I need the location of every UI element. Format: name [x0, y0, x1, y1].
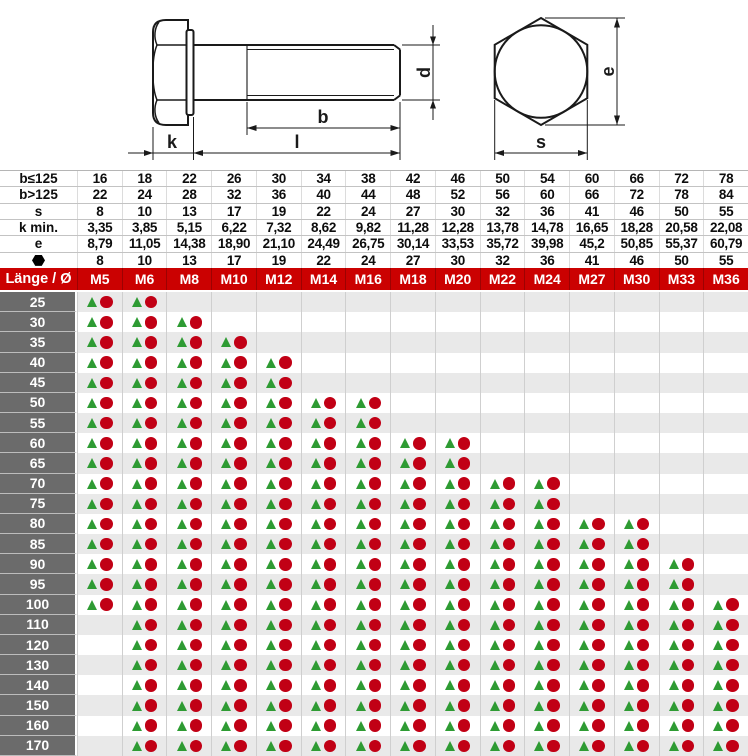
triangle-marker	[266, 600, 276, 610]
triangle-marker	[87, 519, 97, 529]
availability-cell-M6-30	[122, 312, 167, 332]
triangle-marker	[132, 660, 142, 670]
triangle-marker	[445, 579, 455, 589]
circle-marker	[145, 498, 158, 511]
triangle-marker	[266, 640, 276, 650]
triangle-marker	[534, 539, 544, 549]
triangle-marker	[534, 701, 544, 711]
triangle-marker	[445, 620, 455, 630]
availability-cell-M16-95	[345, 574, 390, 594]
spec-value: 46	[614, 253, 659, 268]
availability-cell-M14-140	[301, 675, 346, 695]
circle-marker	[279, 356, 292, 369]
triangle-marker	[400, 721, 410, 731]
triangle-marker	[579, 539, 589, 549]
spec-value: 22,08	[703, 220, 748, 235]
availability-cell-M16-45	[345, 373, 390, 393]
availability-cell-M18-95	[390, 574, 435, 594]
dim-k-label: k	[167, 132, 178, 152]
circle-marker	[592, 679, 605, 692]
circle-marker	[637, 578, 650, 591]
circle-marker	[100, 356, 113, 369]
spec-value: 3,35	[77, 220, 122, 235]
availability-cell-M18-140	[390, 675, 435, 695]
circle-marker	[547, 740, 560, 753]
spec-value: 84	[703, 187, 748, 202]
circle-marker	[413, 598, 426, 611]
availability-cell-M6-55	[122, 413, 167, 433]
triangle-marker	[400, 600, 410, 610]
circle-marker	[100, 477, 113, 490]
spec-value: 72	[614, 187, 659, 202]
circle-marker	[234, 719, 247, 732]
triangle-marker	[490, 620, 500, 630]
availability-cell-M5-75	[77, 494, 122, 514]
circle-marker	[234, 437, 247, 450]
triangle-marker	[713, 721, 723, 731]
availability-cell-M10-35	[211, 332, 256, 352]
availability-cell-M5-90	[77, 554, 122, 574]
thread-section	[247, 45, 394, 100]
availability-cell-M8-60	[166, 433, 211, 453]
triangle-marker	[400, 680, 410, 690]
circle-marker	[190, 477, 203, 490]
triangle-marker	[311, 701, 321, 711]
circle-marker	[234, 538, 247, 551]
circle-marker	[100, 437, 113, 450]
triangle-marker	[311, 438, 321, 448]
circle-marker	[682, 639, 695, 652]
circle-marker	[413, 639, 426, 652]
availability-cell-M24-160	[524, 716, 569, 736]
triangle-marker	[221, 559, 231, 569]
circle-marker	[100, 397, 113, 410]
triangle-marker	[669, 741, 679, 751]
circle-marker	[369, 498, 382, 511]
circle-marker	[503, 578, 516, 591]
bolt-technical-drawing: k b l d e s	[0, 0, 748, 170]
availability-cell-M27-85	[569, 534, 614, 554]
spec-value: 24	[122, 187, 167, 202]
triangle-marker	[132, 398, 142, 408]
spec-value: 48	[390, 187, 435, 202]
availability-cell-M33-95	[659, 574, 704, 594]
length-label: 70	[0, 474, 77, 494]
availability-cell-M24-140	[524, 675, 569, 695]
triangle-marker	[177, 660, 187, 670]
availability-cell-M12-140	[256, 675, 301, 695]
triangle-marker	[445, 479, 455, 489]
circle-marker	[637, 538, 650, 551]
availability-cell-M36-35	[703, 332, 748, 352]
circle-marker	[458, 457, 471, 470]
availability-cell-M6-40	[122, 353, 167, 373]
circle-marker	[413, 719, 426, 732]
availability-cell-M33-130	[659, 655, 704, 675]
availability-cell-M22-65	[480, 453, 525, 473]
triangle-marker	[177, 317, 187, 327]
length-row-110: 110	[0, 615, 748, 635]
availability-cell-M20-75	[435, 494, 480, 514]
spec-row: k min.3,353,855,156,227,328,629,8211,281…	[0, 220, 748, 236]
availability-cell-M27-90	[569, 554, 614, 574]
circle-marker	[458, 538, 471, 551]
availability-cell-M24-55	[524, 413, 569, 433]
availability-cell-M20-25	[435, 292, 480, 312]
size-header-row: Länge / Ø M5M6M8M10M12M14M16M18M20M22M24…	[0, 268, 748, 292]
triangle-marker	[87, 378, 97, 388]
availability-cell-M14-55	[301, 413, 346, 433]
size-header-M16: M16	[345, 268, 390, 290]
circle-marker	[458, 437, 471, 450]
availability-cell-M22-150	[480, 695, 525, 715]
availability-cell-M30-40	[614, 353, 659, 373]
length-label: 30	[0, 312, 77, 332]
circle-marker	[503, 498, 516, 511]
availability-cell-M12-40	[256, 353, 301, 373]
circle-marker	[726, 659, 739, 672]
availability-cell-M8-170	[166, 736, 211, 756]
availability-cell-M24-30	[524, 312, 569, 332]
triangle-marker	[311, 680, 321, 690]
circle-marker	[369, 699, 382, 712]
availability-cell-M14-130	[301, 655, 346, 675]
availability-cell-M16-70	[345, 474, 390, 494]
triangle-marker	[579, 640, 589, 650]
length-label: 80	[0, 514, 77, 534]
triangle-marker	[579, 559, 589, 569]
availability-cell-M5-70	[77, 474, 122, 494]
circle-marker	[234, 740, 247, 753]
availability-cell-M5-55	[77, 413, 122, 433]
circle-marker	[234, 518, 247, 531]
spec-value: 7,32	[256, 220, 301, 235]
circle-marker	[324, 619, 337, 632]
triangle-marker	[534, 680, 544, 690]
triangle-marker	[445, 721, 455, 731]
triangle-marker	[400, 479, 410, 489]
availability-cell-M20-70	[435, 474, 480, 494]
availability-cell-M20-160	[435, 716, 480, 736]
dim-s-label: s	[536, 132, 546, 152]
length-row-85: 85	[0, 534, 748, 554]
availability-cell-M16-55	[345, 413, 390, 433]
triangle-marker	[132, 317, 142, 327]
size-header-M14: M14	[301, 268, 346, 290]
length-label: 60	[0, 433, 77, 453]
availability-cell-M30-70	[614, 474, 659, 494]
triangle-marker	[579, 741, 589, 751]
availability-cell-M20-150	[435, 695, 480, 715]
availability-cell-M16-85	[345, 534, 390, 554]
availability-cell-M12-50	[256, 393, 301, 413]
availability-cell-M24-45	[524, 373, 569, 393]
dim-e-label: e	[598, 66, 618, 76]
spec-value: 14,38	[166, 236, 211, 251]
spec-value: 30	[435, 253, 480, 268]
triangle-marker	[490, 559, 500, 569]
availability-table: Länge / Ø M5M6M8M10M12M14M16M18M20M22M24…	[0, 268, 748, 756]
circle-marker	[145, 397, 158, 410]
availability-cell-M36-60	[703, 433, 748, 453]
availability-cell-M33-100	[659, 595, 704, 615]
circle-marker	[145, 437, 158, 450]
circle-marker	[190, 538, 203, 551]
triangle-marker	[356, 539, 366, 549]
availability-cell-M6-120	[122, 635, 167, 655]
triangle-marker	[669, 660, 679, 670]
circle-marker	[279, 518, 292, 531]
spec-value: 50	[659, 253, 704, 268]
availability-cell-M20-120	[435, 635, 480, 655]
availability-cell-M30-55	[614, 413, 659, 433]
triangle-marker	[445, 438, 455, 448]
triangle-marker	[356, 559, 366, 569]
availability-cell-M16-90	[345, 554, 390, 574]
availability-cell-M24-60	[524, 433, 569, 453]
circle-marker	[503, 558, 516, 571]
availability-cell-M33-30	[659, 312, 704, 332]
circle-marker	[324, 598, 337, 611]
availability-cell-M6-35	[122, 332, 167, 352]
availability-cell-M18-110	[390, 615, 435, 635]
triangle-marker	[490, 721, 500, 731]
triangle-marker	[221, 741, 231, 751]
availability-cell-M30-95	[614, 574, 659, 594]
triangle-marker	[579, 519, 589, 529]
availability-cell-M14-160	[301, 716, 346, 736]
circle-marker	[503, 518, 516, 531]
circle-marker	[592, 538, 605, 551]
availability-cell-M33-140	[659, 675, 704, 695]
circle-marker	[637, 639, 650, 652]
hex-head-symbol	[0, 253, 77, 268]
availability-cell-M18-40	[390, 353, 435, 373]
spec-value: 8,79	[77, 236, 122, 251]
circle-marker	[279, 457, 292, 470]
availability-cell-M20-55	[435, 413, 480, 433]
triangle-marker	[445, 741, 455, 751]
spec-value: 27	[390, 253, 435, 268]
triangle-marker	[177, 579, 187, 589]
bolt-end-view	[495, 18, 625, 160]
circle-marker	[145, 518, 158, 531]
availability-cell-M24-35	[524, 332, 569, 352]
spec-row-label: b≤125	[0, 171, 77, 186]
availability-cell-M30-30	[614, 312, 659, 332]
dim-l-label: l	[294, 132, 299, 152]
spec-value: 16	[77, 171, 122, 186]
circle-marker	[547, 719, 560, 732]
availability-cell-M6-100	[122, 595, 167, 615]
availability-cell-M10-110	[211, 615, 256, 635]
availability-cell-M30-50	[614, 393, 659, 413]
triangle-marker	[221, 640, 231, 650]
spec-value: 39,98	[524, 236, 569, 251]
availability-cell-M24-40	[524, 353, 569, 373]
circle-marker	[190, 518, 203, 531]
availability-cell-M27-120	[569, 635, 614, 655]
circle-marker	[324, 659, 337, 672]
availability-cell-M20-95	[435, 574, 480, 594]
circle-marker	[413, 538, 426, 551]
availability-cell-M12-160	[256, 716, 301, 736]
availability-cell-M18-100	[390, 595, 435, 615]
availability-cell-M33-75	[659, 494, 704, 514]
circle-marker	[324, 518, 337, 531]
spec-value: 24	[345, 204, 390, 219]
length-label: 45	[0, 373, 77, 393]
spec-value: 42	[390, 171, 435, 186]
triangle-marker	[445, 701, 455, 711]
length-row-95: 95	[0, 574, 748, 594]
circle-marker	[413, 477, 426, 490]
spec-value: 44	[345, 187, 390, 202]
triangle-marker	[534, 721, 544, 731]
triangle-marker	[132, 579, 142, 589]
triangle-marker	[356, 499, 366, 509]
availability-cell-M5-85	[77, 534, 122, 554]
availability-cell-M24-50	[524, 393, 569, 413]
circle-marker	[369, 619, 382, 632]
availability-cell-M16-110	[345, 615, 390, 635]
circle-marker	[324, 498, 337, 511]
circle-marker	[592, 740, 605, 753]
availability-cell-M33-160	[659, 716, 704, 736]
spec-value: 19	[256, 204, 301, 219]
availability-cell-M33-110	[659, 615, 704, 635]
circle-marker	[279, 437, 292, 450]
circle-marker	[682, 578, 695, 591]
availability-cell-M30-60	[614, 433, 659, 453]
availability-cell-M18-50	[390, 393, 435, 413]
availability-cell-M27-30	[569, 312, 614, 332]
availability-cell-M33-120	[659, 635, 704, 655]
triangle-marker	[400, 539, 410, 549]
spec-value: 36	[524, 253, 569, 268]
length-label: 130	[0, 655, 77, 675]
availability-cell-M6-160	[122, 716, 167, 736]
triangle-marker	[624, 620, 634, 630]
availability-cell-M22-75	[480, 494, 525, 514]
availability-cell-M24-120	[524, 635, 569, 655]
circle-marker	[369, 457, 382, 470]
availability-cell-M6-170	[122, 736, 167, 756]
availability-cell-M24-70	[524, 474, 569, 494]
triangle-marker	[579, 620, 589, 630]
triangle-marker	[400, 458, 410, 468]
circle-marker	[324, 538, 337, 551]
availability-cell-M8-80	[166, 514, 211, 534]
triangle-marker	[534, 579, 544, 589]
availability-cell-M24-95	[524, 574, 569, 594]
availability-cell-M10-75	[211, 494, 256, 514]
circle-marker	[145, 639, 158, 652]
circle-marker	[458, 719, 471, 732]
circle-marker	[637, 659, 650, 672]
triangle-marker	[713, 620, 723, 630]
availability-cell-M22-80	[480, 514, 525, 534]
circle-marker	[234, 659, 247, 672]
triangle-marker	[177, 721, 187, 731]
circle-marker	[190, 356, 203, 369]
triangle-marker	[400, 579, 410, 589]
circle-marker	[458, 578, 471, 591]
availability-cell-M8-130	[166, 655, 211, 675]
availability-cell-M8-75	[166, 494, 211, 514]
circle-marker	[682, 619, 695, 632]
circle-marker	[279, 639, 292, 652]
spec-value: 78	[703, 171, 748, 186]
availability-cell-M18-75	[390, 494, 435, 514]
availability-cell-M8-160	[166, 716, 211, 736]
availability-cell-M36-65	[703, 453, 748, 473]
triangle-marker	[266, 499, 276, 509]
availability-cell-M33-85	[659, 534, 704, 554]
spec-value: 40	[301, 187, 346, 202]
triangle-marker	[266, 519, 276, 529]
triangle-marker	[177, 378, 187, 388]
availability-cell-M12-35	[256, 332, 301, 352]
availability-cell-M12-30	[256, 312, 301, 332]
spec-value: 60	[569, 171, 614, 186]
availability-cell-M5-25	[77, 292, 122, 312]
circle-marker	[190, 336, 203, 349]
availability-cell-M10-130	[211, 655, 256, 675]
circle-marker	[324, 719, 337, 732]
triangle-marker	[221, 539, 231, 549]
spec-value: 6,22	[211, 220, 256, 235]
availability-cell-M22-60	[480, 433, 525, 453]
availability-cell-M24-100	[524, 595, 569, 615]
circle-marker	[413, 699, 426, 712]
triangle-marker	[579, 660, 589, 670]
triangle-marker	[356, 741, 366, 751]
circle-marker	[369, 437, 382, 450]
triangle-marker	[579, 579, 589, 589]
triangle-marker	[490, 479, 500, 489]
spec-value: 72	[659, 171, 704, 186]
triangle-marker	[311, 579, 321, 589]
availability-cell-M5-160	[77, 716, 122, 736]
availability-cell-M16-35	[345, 332, 390, 352]
size-header-M24: M24	[524, 268, 569, 290]
circle-marker	[100, 296, 113, 309]
triangle-marker	[356, 438, 366, 448]
spec-row: b≤125161822263034384246505460667278	[0, 171, 748, 187]
spec-value: 22	[301, 204, 346, 219]
spec-value: 46	[614, 204, 659, 219]
circle-marker	[145, 679, 158, 692]
circle-marker	[100, 457, 113, 470]
availability-cell-M22-45	[480, 373, 525, 393]
triangle-marker	[132, 297, 142, 307]
triangle-marker	[669, 640, 679, 650]
availability-cell-M22-30	[480, 312, 525, 332]
triangle-marker	[221, 499, 231, 509]
availability-cell-M6-140	[122, 675, 167, 695]
spec-value: 19	[256, 253, 301, 268]
spec-value: 3,85	[122, 220, 167, 235]
availability-cell-M14-110	[301, 615, 346, 635]
triangle-marker	[132, 418, 142, 428]
availability-cell-M8-30	[166, 312, 211, 332]
availability-cell-M33-50	[659, 393, 704, 413]
circle-marker	[369, 598, 382, 611]
circle-marker	[324, 679, 337, 692]
circle-marker	[726, 619, 739, 632]
spec-value: 30	[435, 204, 480, 219]
